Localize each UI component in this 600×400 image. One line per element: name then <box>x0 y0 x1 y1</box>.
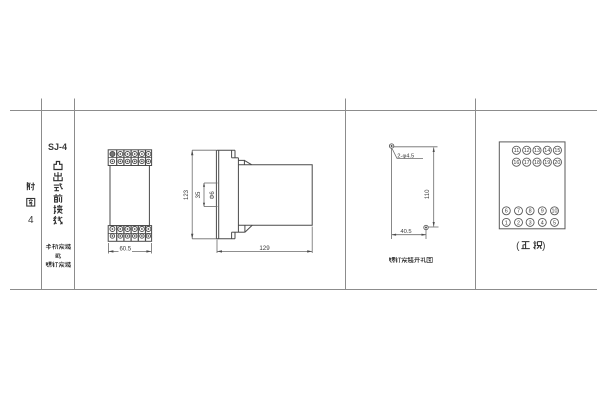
svg-text:9: 9 <box>541 209 544 215</box>
svg-text:13: 13 <box>534 148 540 154</box>
svg-text:Φ6: Φ6 <box>210 191 216 200</box>
svg-text:40.5: 40.5 <box>400 229 411 235</box>
svg-text:18: 18 <box>534 160 540 166</box>
svg-text:35: 35 <box>196 191 202 198</box>
svg-text:8: 8 <box>529 209 532 215</box>
svg-text:129: 129 <box>259 245 270 252</box>
svg-text:16: 16 <box>513 160 519 166</box>
svg-text:17: 17 <box>524 160 530 166</box>
svg-text:12: 12 <box>524 148 530 154</box>
svg-text:6: 6 <box>505 209 508 215</box>
svg-text:4: 4 <box>28 215 34 226</box>
svg-text:20: 20 <box>554 160 560 166</box>
svg-text:2-φ4.5: 2-φ4.5 <box>397 153 414 159</box>
svg-text:1: 1 <box>505 220 508 226</box>
svg-text:5: 5 <box>553 220 556 226</box>
svg-text:7: 7 <box>517 209 520 215</box>
svg-text:14: 14 <box>544 148 550 154</box>
svg-text:19: 19 <box>544 160 550 166</box>
svg-text:4: 4 <box>541 220 544 226</box>
svg-text:10: 10 <box>552 209 558 215</box>
svg-text:11: 11 <box>514 148 520 154</box>
svg-text:60.5: 60.5 <box>119 247 131 253</box>
svg-text:123: 123 <box>184 189 190 200</box>
svg-text:3: 3 <box>529 220 532 226</box>
svg-text:110: 110 <box>425 189 431 199</box>
svg-text:2: 2 <box>517 220 520 226</box>
svg-text:SJ-4: SJ-4 <box>48 142 67 152</box>
svg-text:15: 15 <box>554 148 560 154</box>
svg-text:): ) <box>542 241 545 252</box>
